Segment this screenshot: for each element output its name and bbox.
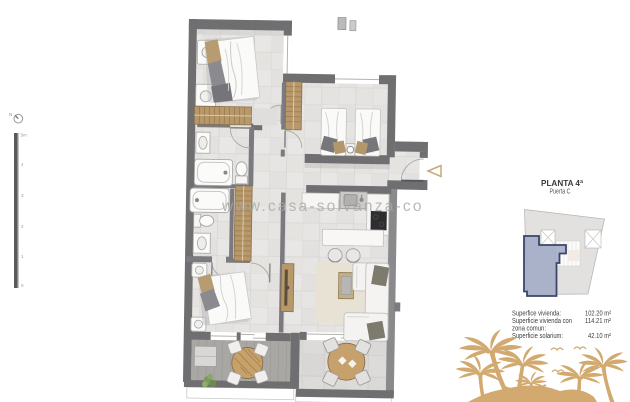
- svg-text:4: 4: [21, 162, 24, 167]
- svg-text:zona comun:: zona comun:: [512, 326, 546, 333]
- svg-text:5m: 5m: [21, 133, 28, 138]
- svg-text:PLANTA 4ª: PLANTA 4ª: [541, 179, 584, 188]
- svg-text:2: 2: [21, 224, 24, 229]
- svg-text:42.10 m²: 42.10 m²: [588, 333, 612, 340]
- svg-text:102.20 m²: 102.20 m²: [585, 311, 612, 318]
- svg-text:Puerta C: Puerta C: [550, 189, 571, 196]
- svg-text:114.21 m²: 114.21 m²: [585, 318, 612, 325]
- svg-text:0: 0: [21, 283, 24, 288]
- svg-text:Superficie solarium:: Superficie solarium:: [512, 333, 563, 340]
- svg-text:3: 3: [21, 193, 24, 198]
- svg-text:Superficie vivienda con: Superficie vivienda con: [512, 318, 572, 325]
- svg-text:www.casa-solvanza-co: www.casa-solvanza-co: [221, 198, 424, 215]
- svg-text:Superfice vivienda:: Superfice vivienda:: [512, 311, 561, 318]
- svg-text:1: 1: [21, 254, 24, 259]
- svg-text:N: N: [9, 112, 12, 117]
